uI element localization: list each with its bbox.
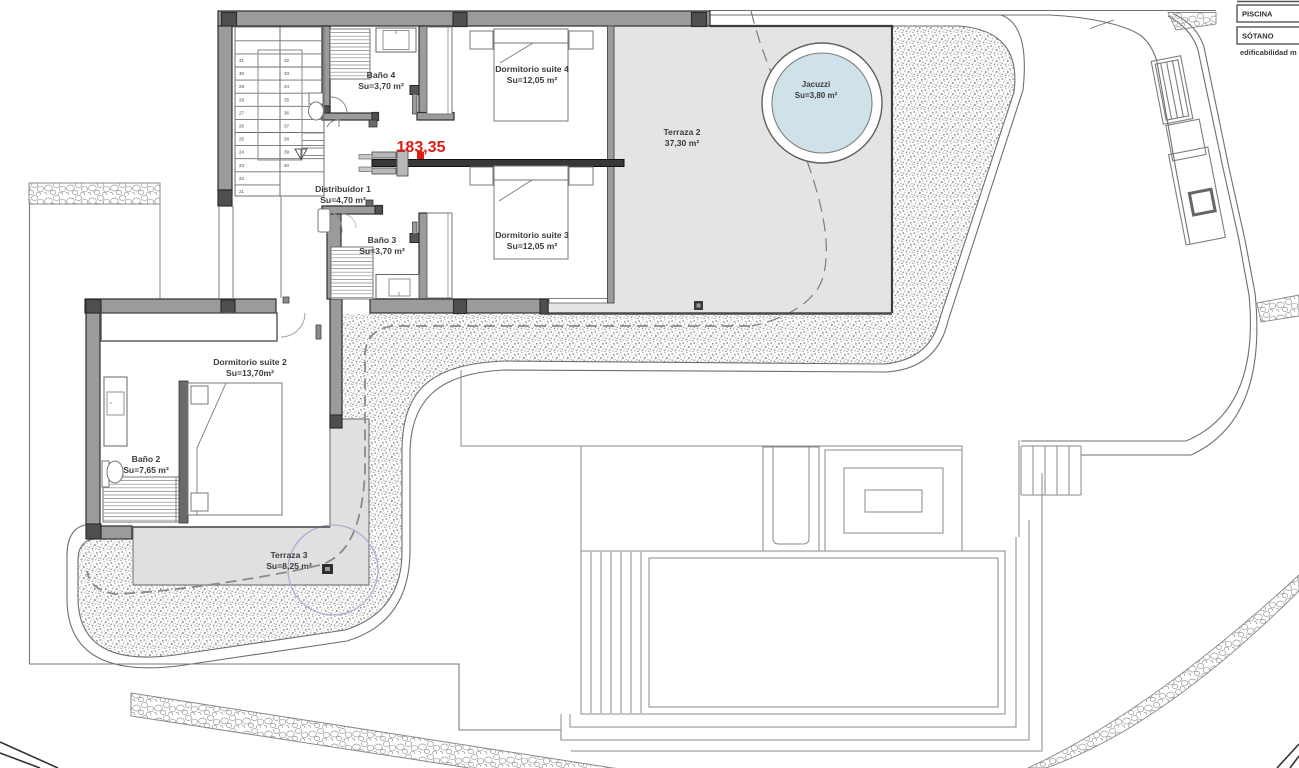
- svg-text:Baño 2: Baño 2: [132, 454, 161, 464]
- svg-text:Su=12,05 m²: Su=12,05 m²: [507, 75, 558, 85]
- svg-text:Terraza 2: Terraza 2: [663, 127, 700, 137]
- svg-text:edificabilidad m: edificabilidad m: [1240, 48, 1297, 57]
- svg-text:PISCINA: PISCINA: [1242, 10, 1273, 19]
- svg-text:Jacuzzi: Jacuzzi: [802, 80, 830, 89]
- svg-text:183,35: 183,35: [397, 139, 446, 156]
- svg-text:25: 25: [239, 137, 245, 142]
- svg-text:36: 36: [284, 110, 290, 115]
- svg-text:Su=3,70 m²: Su=3,70 m²: [359, 246, 405, 256]
- svg-text:Dormitorio suite 2: Dormitorio suite 2: [213, 357, 287, 367]
- svg-text:39: 39: [284, 150, 290, 155]
- svg-text:31: 31: [239, 58, 245, 63]
- svg-text:40: 40: [284, 163, 290, 168]
- svg-text:Distribuidor 1: Distribuidor 1: [315, 184, 371, 194]
- svg-text:Su=3,70 m²: Su=3,70 m²: [358, 81, 404, 91]
- svg-text:26: 26: [239, 124, 245, 129]
- svg-text:34: 34: [284, 84, 290, 89]
- svg-text:27: 27: [239, 110, 245, 115]
- svg-text:Su=3,80 m²: Su=3,80 m²: [795, 91, 838, 100]
- svg-text:Baño 4: Baño 4: [367, 70, 396, 80]
- svg-text:Su=12,05 m²: Su=12,05 m²: [507, 241, 558, 251]
- svg-text:22: 22: [239, 176, 245, 181]
- svg-text:Dormitorio suite 3: Dormitorio suite 3: [495, 230, 569, 240]
- svg-text:21: 21: [239, 189, 245, 194]
- svg-text:29: 29: [239, 84, 245, 89]
- svg-text:35: 35: [284, 97, 290, 102]
- svg-text:Su=4,70 m²: Su=4,70 m²: [320, 195, 366, 205]
- svg-text:SÓTANO: SÓTANO: [1242, 32, 1274, 41]
- svg-text:24: 24: [239, 150, 245, 155]
- svg-text:30: 30: [239, 71, 245, 76]
- svg-text:23: 23: [239, 163, 245, 168]
- svg-text:38: 38: [284, 137, 290, 142]
- svg-text:37,30 m²: 37,30 m²: [665, 138, 700, 148]
- svg-text:28: 28: [239, 97, 245, 102]
- svg-text:33: 33: [284, 71, 290, 76]
- svg-text:Su=8,25 m²: Su=8,25 m²: [266, 561, 312, 571]
- svg-text:Baño 3: Baño 3: [368, 235, 397, 245]
- svg-text:Terraza 3: Terraza 3: [270, 550, 307, 560]
- svg-text:Su=7,65 m²: Su=7,65 m²: [123, 465, 169, 475]
- svg-text:Dormitorio suite 4: Dormitorio suite 4: [495, 64, 569, 74]
- svg-text:37: 37: [284, 124, 290, 129]
- svg-text:Su=13,70m²: Su=13,70m²: [226, 368, 274, 378]
- svg-text:32: 32: [284, 58, 290, 63]
